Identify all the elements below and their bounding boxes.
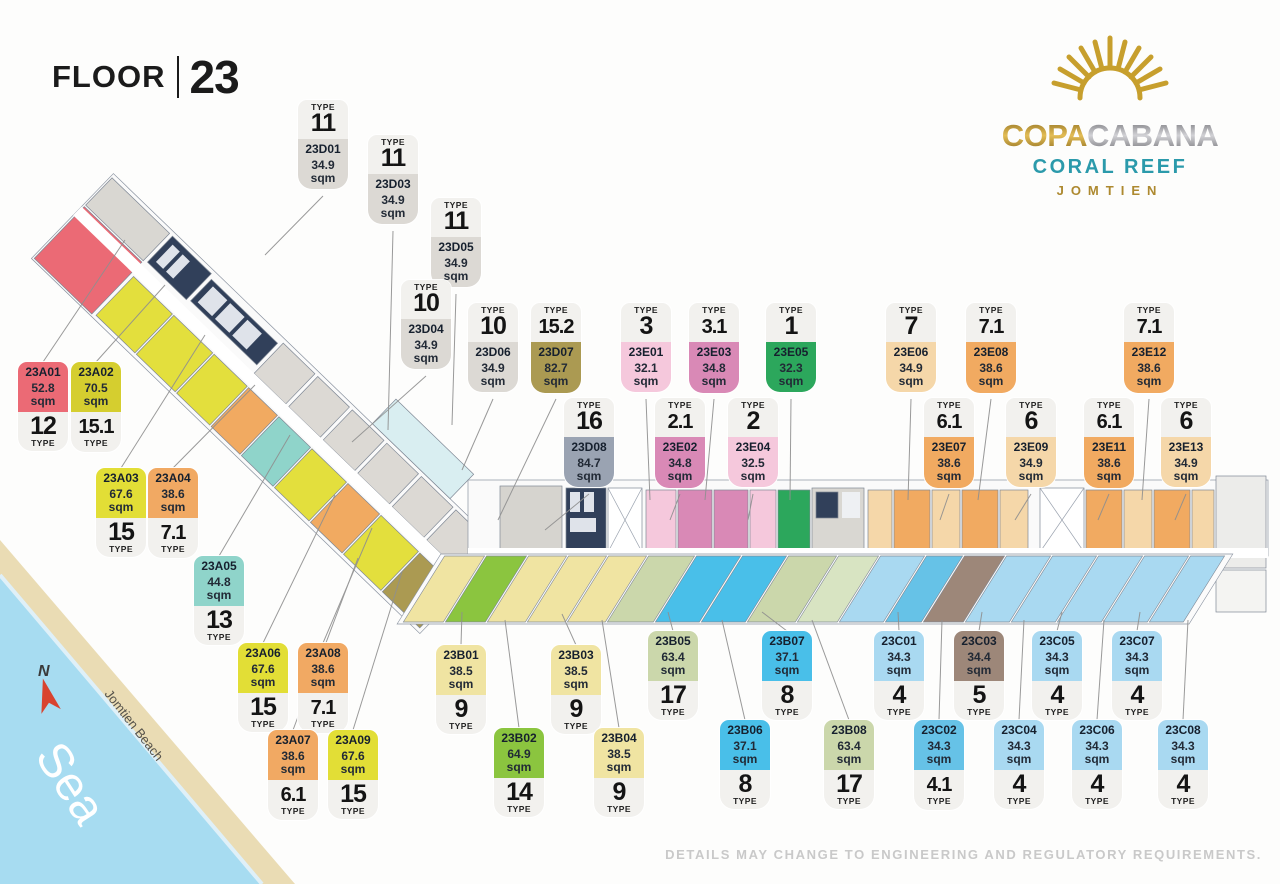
sqm-label: sqm xyxy=(1112,664,1162,677)
unit-tag-23d06[interactable]: TYPE1023D0634.9sqm xyxy=(468,303,518,392)
unit-tag-23c03[interactable]: 23C0334.4sqm5TYPE xyxy=(954,631,1004,720)
unit-area: 38.5 xyxy=(594,748,644,761)
unit-type-number: 11 xyxy=(298,112,348,136)
unit-type-number: 4 xyxy=(874,684,924,708)
unit-area: 34.3 xyxy=(874,651,924,664)
unit-area: 34.3 xyxy=(1032,651,1082,664)
unit-tag-23d05[interactable]: TYPE1123D0534.9sqm xyxy=(431,198,481,287)
type-label: TYPE xyxy=(1084,401,1134,410)
unit-area: 63.4 xyxy=(648,651,698,664)
unit-type-number: 16 xyxy=(564,410,614,434)
type-label: TYPE xyxy=(1112,708,1162,717)
unit-type-number: 13 xyxy=(194,609,244,633)
sqm-label: sqm xyxy=(1032,664,1082,677)
unit-area: 67.6 xyxy=(238,663,288,676)
unit-code: 23C01 xyxy=(874,634,924,650)
type-label: TYPE xyxy=(648,708,698,717)
type-label: TYPE xyxy=(298,720,348,729)
unit-code: 23E08 xyxy=(966,345,1016,361)
unit-code: 23A06 xyxy=(238,646,288,662)
unit-area: 34.4 xyxy=(954,651,1004,664)
unit-code: 23E11 xyxy=(1084,440,1134,456)
unit-type-number: 11 xyxy=(431,210,481,234)
unit-area: 34.3 xyxy=(1072,740,1122,753)
sqm-label: sqm xyxy=(238,676,288,689)
unit-tag-23c06[interactable]: 23C0634.3sqm4TYPE xyxy=(1072,720,1122,809)
unit-type-number: 3 xyxy=(621,315,671,339)
type-label: TYPE xyxy=(436,722,486,731)
unit-tag-23e02[interactable]: TYPE2.123E0234.8sqm xyxy=(655,398,705,488)
sqm-label: sqm xyxy=(689,375,739,388)
brand-subtitle: CORAL REEF xyxy=(1033,156,1188,178)
unit-area: 67.6 xyxy=(328,750,378,763)
unit-area: 84.7 xyxy=(564,457,614,470)
unit-code: 23E06 xyxy=(886,345,936,361)
unit-type-number: 4 xyxy=(1072,773,1122,797)
unit-tag-23b01[interactable]: 23B0138.5sqm9TYPE xyxy=(436,645,486,734)
type-label: TYPE xyxy=(494,805,544,814)
type-label: TYPE xyxy=(594,805,644,814)
unit-type-number: 4 xyxy=(994,773,1044,797)
unit-area: 64.9 xyxy=(494,748,544,761)
unit-tag-23c05[interactable]: 23C0534.3sqm4TYPE xyxy=(1032,631,1082,720)
unit-type-number: 4 xyxy=(1112,684,1162,708)
unit-type-number: 15.2 xyxy=(531,315,581,339)
unit-area: 34.9 xyxy=(886,362,936,375)
unit-tag-23e01[interactable]: TYPE323E0132.1sqm xyxy=(621,303,671,392)
sqm-label: sqm xyxy=(1158,753,1208,766)
unit-type-number: 1 xyxy=(766,315,816,339)
sqm-label: sqm xyxy=(148,501,198,514)
unit-tag-23d08[interactable]: TYPE1623D0884.7sqm xyxy=(564,398,614,487)
sqm-label: sqm xyxy=(551,678,601,691)
unit-code: 23D03 xyxy=(368,177,418,193)
sqm-label: sqm xyxy=(762,664,812,677)
unit-type-number: 15.1 xyxy=(71,415,121,439)
unit-tag-23e04[interactable]: TYPE223E0432.5sqm xyxy=(728,398,778,487)
unit-code: 23C05 xyxy=(1032,634,1082,650)
type-label: TYPE xyxy=(194,633,244,642)
type-label: TYPE xyxy=(1158,797,1208,806)
unit-code: 23A01 xyxy=(18,365,68,381)
unit-tag-23a01[interactable]: 23A0152.8sqm12TYPE xyxy=(18,362,68,451)
unit-tag-23b02[interactable]: 23B0264.9sqm14TYPE xyxy=(494,728,544,817)
sqm-label: sqm xyxy=(728,470,778,483)
unit-tag-23a09[interactable]: 23A0967.6sqm15TYPE xyxy=(328,730,378,819)
unit-code: 23A05 xyxy=(194,559,244,575)
sqm-label: sqm xyxy=(494,761,544,774)
unit-code: 23E03 xyxy=(689,345,739,361)
type-label: TYPE xyxy=(994,797,1044,806)
unit-tag-23e05[interactable]: TYPE123E0532.3sqm xyxy=(766,303,816,392)
type-label: TYPE xyxy=(954,708,1004,717)
unit-type-number: 9 xyxy=(436,698,486,722)
type-label: TYPE xyxy=(924,401,974,410)
unit-area: 34.9 xyxy=(298,159,348,172)
unit-area: 34.3 xyxy=(1158,740,1208,753)
unit-code: 23A02 xyxy=(71,365,121,381)
type-label: TYPE xyxy=(720,797,770,806)
unit-tag-23a02[interactable]: 23A0270.5sqm15.1TYPE xyxy=(71,362,121,452)
unit-code: 23B06 xyxy=(720,723,770,739)
unit-tag-23c02[interactable]: 23C0234.3sqm4.1TYPE xyxy=(914,720,964,810)
unit-area: 70.5 xyxy=(71,382,121,395)
sqm-label: sqm xyxy=(1161,470,1211,483)
unit-code: 23C02 xyxy=(914,723,964,739)
unit-code: 23E09 xyxy=(1006,440,1056,456)
type-label: TYPE xyxy=(18,439,68,448)
sqm-label: sqm xyxy=(954,664,1004,677)
unit-tag-23b07[interactable]: 23B0737.1sqm8TYPE xyxy=(762,631,812,720)
sqm-label: sqm xyxy=(531,375,581,388)
unit-area: 32.5 xyxy=(728,457,778,470)
unit-tag-23a07[interactable]: 23A0738.6sqm6.1TYPE xyxy=(268,730,318,820)
unit-code: 23B07 xyxy=(762,634,812,650)
sqm-label: sqm xyxy=(886,375,936,388)
floor-title: FLOOR 23 xyxy=(52,50,239,104)
unit-tag-23d03[interactable]: TYPE1123D0334.9sqm xyxy=(368,135,418,224)
type-label: TYPE xyxy=(551,722,601,731)
type-label: TYPE xyxy=(824,797,874,806)
unit-type-number: 9 xyxy=(594,781,644,805)
type-label: TYPE xyxy=(914,797,964,806)
sqm-label: sqm xyxy=(655,470,705,483)
unit-area: 34.9 xyxy=(1161,457,1211,470)
unit-area: 34.9 xyxy=(431,257,481,270)
unit-area: 34.9 xyxy=(468,362,518,375)
sqm-label: sqm xyxy=(298,172,348,185)
unit-code: 23C08 xyxy=(1158,723,1208,739)
floor-number: 23 xyxy=(190,50,239,104)
sqm-label: sqm xyxy=(368,207,418,220)
unit-tag-23e11[interactable]: TYPE6.123E1138.6sqm xyxy=(1084,398,1134,488)
unit-type-number: 15 xyxy=(328,783,378,807)
unit-type-number: 5 xyxy=(954,684,1004,708)
type-label: TYPE xyxy=(966,306,1016,315)
sqm-label: sqm xyxy=(268,763,318,776)
unit-type-number: 15 xyxy=(238,696,288,720)
sqm-label: sqm xyxy=(1084,470,1134,483)
unit-tag-23d01[interactable]: TYPE1123D0134.9sqm xyxy=(298,100,348,189)
unit-area: 34.9 xyxy=(1006,457,1056,470)
unit-tag-23c08[interactable]: 23C0834.3sqm4TYPE xyxy=(1158,720,1208,809)
sqm-label: sqm xyxy=(1124,375,1174,388)
unit-type-number: 6.1 xyxy=(268,783,318,807)
unit-code: 23E04 xyxy=(728,440,778,456)
sqm-label: sqm xyxy=(1006,470,1056,483)
unit-code: 23C07 xyxy=(1112,634,1162,650)
sqm-label: sqm xyxy=(766,375,816,388)
unit-area: 38.5 xyxy=(436,665,486,678)
type-label: TYPE xyxy=(1072,797,1122,806)
sqm-label: sqm xyxy=(648,664,698,677)
unit-code: 23D08 xyxy=(564,440,614,456)
unit-type-number: 4 xyxy=(1032,684,1082,708)
unit-tag-23b08[interactable]: 23B0863.4sqm17TYPE xyxy=(824,720,874,809)
unit-type-number: 6 xyxy=(1161,410,1211,434)
unit-code: 23C06 xyxy=(1072,723,1122,739)
unit-area: 38.6 xyxy=(148,488,198,501)
unit-tag-23d07[interactable]: TYPE15.223D0782.7sqm xyxy=(531,303,581,393)
unit-tag-23a04[interactable]: 23A0438.6sqm7.1TYPE xyxy=(148,468,198,558)
unit-code: 23E05 xyxy=(766,345,816,361)
unit-type-number: 7.1 xyxy=(148,521,198,545)
sqm-label: sqm xyxy=(914,753,964,766)
unit-code: 23E12 xyxy=(1124,345,1174,361)
type-label: TYPE xyxy=(689,306,739,315)
unit-code: 23A09 xyxy=(328,733,378,749)
sqm-label: sqm xyxy=(994,753,1044,766)
unit-tag-23a08[interactable]: 23A0838.6sqm7.1TYPE xyxy=(298,643,348,733)
sqm-label: sqm xyxy=(468,375,518,388)
unit-code: 23C03 xyxy=(954,634,1004,650)
unit-tag-23e09[interactable]: TYPE623E0934.9sqm xyxy=(1006,398,1056,487)
sqm-label: sqm xyxy=(401,352,451,365)
unit-code: 23B08 xyxy=(824,723,874,739)
unit-area: 44.8 xyxy=(194,576,244,589)
unit-type-number: 12 xyxy=(18,415,68,439)
type-label: TYPE xyxy=(762,708,812,717)
unit-code: 23B05 xyxy=(648,634,698,650)
unit-type-number: 3.1 xyxy=(689,315,739,339)
unit-type-number: 11 xyxy=(368,147,418,171)
unit-code: 23A07 xyxy=(268,733,318,749)
unit-code: 23B04 xyxy=(594,731,644,747)
sqm-label: sqm xyxy=(96,501,146,514)
unit-tag-23a05[interactable]: 23A0544.8sqm13TYPE xyxy=(194,556,244,645)
unit-type-number: 7.1 xyxy=(1124,315,1174,339)
unit-code: 23B02 xyxy=(494,731,544,747)
unit-type-number: 4 xyxy=(1158,773,1208,797)
floor-label: FLOOR xyxy=(52,59,166,95)
sqm-label: sqm xyxy=(328,763,378,776)
sqm-label: sqm xyxy=(18,395,68,408)
unit-area: 37.1 xyxy=(762,651,812,664)
type-label: TYPE xyxy=(531,306,581,315)
type-label: TYPE xyxy=(71,439,121,448)
unit-area: 34.3 xyxy=(994,740,1044,753)
unit-code: 23B03 xyxy=(551,648,601,664)
unit-area: 67.6 xyxy=(96,488,146,501)
unit-type-number: 10 xyxy=(401,292,451,316)
unit-tag-23e06[interactable]: TYPE723E0634.9sqm xyxy=(886,303,936,392)
unit-area: 34.3 xyxy=(914,740,964,753)
sqm-label: sqm xyxy=(436,678,486,691)
unit-tag-23b06[interactable]: 23B0637.1sqm8TYPE xyxy=(720,720,770,809)
unit-code: 23D01 xyxy=(298,142,348,158)
unit-code: 23C04 xyxy=(994,723,1044,739)
title-divider xyxy=(177,56,179,98)
unit-area: 37.1 xyxy=(720,740,770,753)
unit-tag-23e08[interactable]: TYPE7.123E0838.6sqm xyxy=(966,303,1016,393)
unit-code: 23D06 xyxy=(468,345,518,361)
type-label: TYPE xyxy=(874,708,924,717)
type-label: TYPE xyxy=(96,545,146,554)
sqm-label: sqm xyxy=(194,589,244,602)
unit-tag-23b03[interactable]: 23B0338.5sqm9TYPE xyxy=(551,645,601,734)
brand-location: JOMTIEN xyxy=(1057,183,1164,198)
sqm-label: sqm xyxy=(621,375,671,388)
unit-type-number: 6 xyxy=(1006,410,1056,434)
brand-name: COPACABANA xyxy=(1002,118,1219,153)
unit-area: 38.6 xyxy=(298,663,348,676)
unit-area: 34.3 xyxy=(1112,651,1162,664)
unit-code: 23E01 xyxy=(621,345,671,361)
unit-code: 23A04 xyxy=(148,471,198,487)
disclaimer-text: DETAILS MAY CHANGE TO ENGINEERING AND RE… xyxy=(665,847,1262,862)
unit-tag-23c04[interactable]: 23C0434.3sqm4TYPE xyxy=(994,720,1044,809)
unit-type-number: 7.1 xyxy=(298,696,348,720)
sunburst-icon xyxy=(1054,38,1166,98)
unit-type-number: 2 xyxy=(728,410,778,434)
sqm-label: sqm xyxy=(924,470,974,483)
unit-tag-23d04[interactable]: TYPE1023D0434.9sqm xyxy=(401,280,451,369)
sqm-label: sqm xyxy=(720,753,770,766)
unit-tag-23b04[interactable]: 23B0438.5sqm9TYPE xyxy=(594,728,644,817)
type-label: TYPE xyxy=(148,545,198,554)
unit-type-number: 2.1 xyxy=(655,410,705,434)
unit-type-number: 17 xyxy=(824,773,874,797)
unit-code: 23D05 xyxy=(431,240,481,256)
unit-type-number: 7 xyxy=(886,315,936,339)
sqm-label: sqm xyxy=(298,676,348,689)
unit-area: 52.8 xyxy=(18,382,68,395)
unit-area: 38.5 xyxy=(551,665,601,678)
unit-type-number: 7.1 xyxy=(966,315,1016,339)
unit-code: 23E07 xyxy=(924,440,974,456)
unit-type-number: 4.1 xyxy=(914,773,964,797)
unit-type-number: 6.1 xyxy=(1084,410,1134,434)
type-label: TYPE xyxy=(328,807,378,816)
brand-logo: COPACABANA CORAL REEF JOMTIEN xyxy=(985,26,1235,206)
unit-tag-23c01[interactable]: 23C0134.3sqm4TYPE xyxy=(874,631,924,720)
unit-type-number: 8 xyxy=(762,684,812,708)
unit-tag-23b05[interactable]: 23B0563.4sqm17TYPE xyxy=(648,631,698,720)
type-label: TYPE xyxy=(1032,708,1082,717)
unit-code: 23A03 xyxy=(96,471,146,487)
unit-type-number: 9 xyxy=(551,698,601,722)
unit-type-number: 14 xyxy=(494,781,544,805)
sqm-label: sqm xyxy=(1072,753,1122,766)
sqm-label: sqm xyxy=(874,664,924,677)
unit-tag-23c07[interactable]: 23C0734.3sqm4TYPE xyxy=(1112,631,1162,720)
unit-tag-23e12[interactable]: TYPE7.123E1238.6sqm xyxy=(1124,303,1174,393)
unit-area: 32.1 xyxy=(621,362,671,375)
unit-code: 23D07 xyxy=(531,345,581,361)
unit-code: 23E13 xyxy=(1161,440,1211,456)
unit-type-number: 10 xyxy=(468,315,518,339)
sqm-label: sqm xyxy=(71,395,121,408)
type-label: TYPE xyxy=(1124,306,1174,315)
unit-area: 34.9 xyxy=(401,339,451,352)
unit-code: 23B01 xyxy=(436,648,486,664)
unit-area: 34.9 xyxy=(368,194,418,207)
unit-type-number: 6.1 xyxy=(924,410,974,434)
unit-tag-23a03[interactable]: 23A0367.6sqm15TYPE xyxy=(96,468,146,557)
unit-code: 23A08 xyxy=(298,646,348,662)
unit-tag-23a06[interactable]: 23A0667.6sqm15TYPE xyxy=(238,643,288,732)
unit-area: 38.6 xyxy=(268,750,318,763)
sqm-label: sqm xyxy=(824,753,874,766)
unit-type-number: 17 xyxy=(648,684,698,708)
unit-tag-23e13[interactable]: TYPE623E1334.9sqm xyxy=(1161,398,1211,487)
unit-tag-23e03[interactable]: TYPE3.123E0334.8sqm xyxy=(689,303,739,393)
unit-area: 63.4 xyxy=(824,740,874,753)
type-label: TYPE xyxy=(655,401,705,410)
sqm-label: sqm xyxy=(966,375,1016,388)
unit-tag-23e07[interactable]: TYPE6.123E0738.6sqm xyxy=(924,398,974,488)
unit-type-number: 8 xyxy=(720,773,770,797)
unit-code: 23E02 xyxy=(655,440,705,456)
sqm-label: sqm xyxy=(594,761,644,774)
type-label: TYPE xyxy=(238,720,288,729)
unit-area: 32.3 xyxy=(766,362,816,375)
sqm-label: sqm xyxy=(564,470,614,483)
unit-code: 23D04 xyxy=(401,322,451,338)
unit-type-number: 15 xyxy=(96,521,146,545)
type-label: TYPE xyxy=(268,807,318,816)
